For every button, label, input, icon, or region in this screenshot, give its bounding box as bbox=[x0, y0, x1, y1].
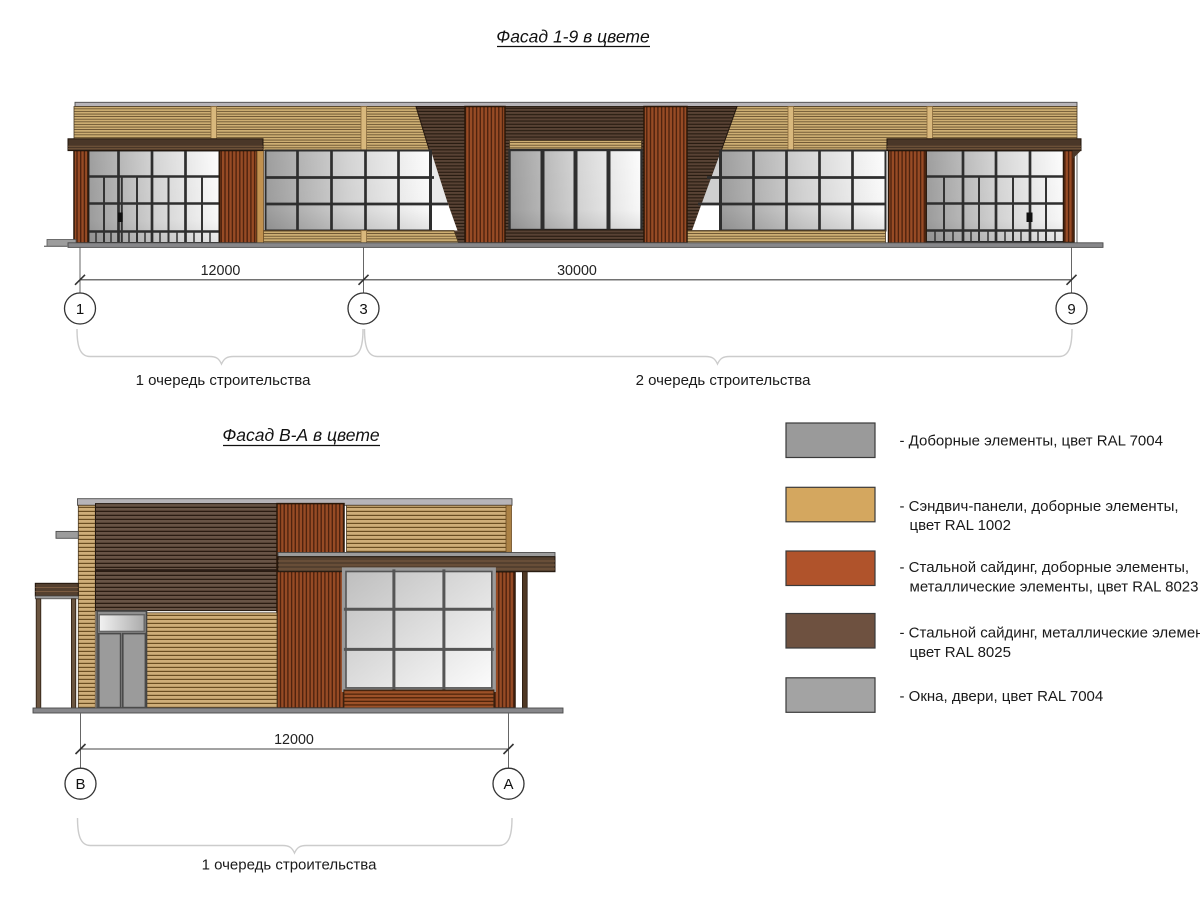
svg-text:цвет RAL 1002: цвет RAL 1002 bbox=[910, 517, 1011, 534]
svg-text:- Стальной сайдинг, металличес: - Стальной сайдинг, металлические элемен… bbox=[900, 625, 1200, 642]
svg-text:Фасад В-А в цвете: Фасад В-А в цвете bbox=[222, 425, 380, 445]
svg-text:Фасад 1-9 в цвете: Фасад 1-9 в цвете bbox=[496, 27, 650, 47]
svg-text:- Сэндвич-панели, доборные эле: - Сэндвич-панели, доборные элементы, bbox=[900, 498, 1179, 515]
svg-text:3: 3 bbox=[359, 301, 367, 318]
svg-text:12000: 12000 bbox=[274, 732, 314, 748]
svg-text:- Окна, двери, цвет RAL 7004: - Окна, двери, цвет RAL 7004 bbox=[900, 688, 1104, 705]
svg-text:В: В bbox=[75, 776, 85, 793]
svg-text:цвет RAL 8025: цвет RAL 8025 bbox=[910, 644, 1011, 661]
svg-text:- Доборные элементы, цвет RAL: - Доборные элементы, цвет RAL 7004 bbox=[900, 433, 1163, 450]
svg-text:2 очередь строительства: 2 очередь строительства bbox=[636, 372, 811, 389]
svg-text:9: 9 bbox=[1067, 301, 1075, 318]
svg-text:12000: 12000 bbox=[201, 263, 241, 279]
svg-text:1 очередь строительства: 1 очередь строительства bbox=[202, 857, 377, 874]
svg-text:металлические элементы, цвет R: металлические элементы, цвет RAL 8023 bbox=[910, 579, 1199, 596]
svg-text:1: 1 bbox=[76, 301, 84, 318]
svg-text:- Стальной сайдинг, доборные э: - Стальной сайдинг, доборные элементы, bbox=[900, 559, 1190, 576]
svg-text:А: А bbox=[503, 776, 513, 793]
svg-text:30000: 30000 bbox=[557, 263, 597, 279]
svg-text:1 очередь строительства: 1 очередь строительства bbox=[136, 372, 311, 389]
